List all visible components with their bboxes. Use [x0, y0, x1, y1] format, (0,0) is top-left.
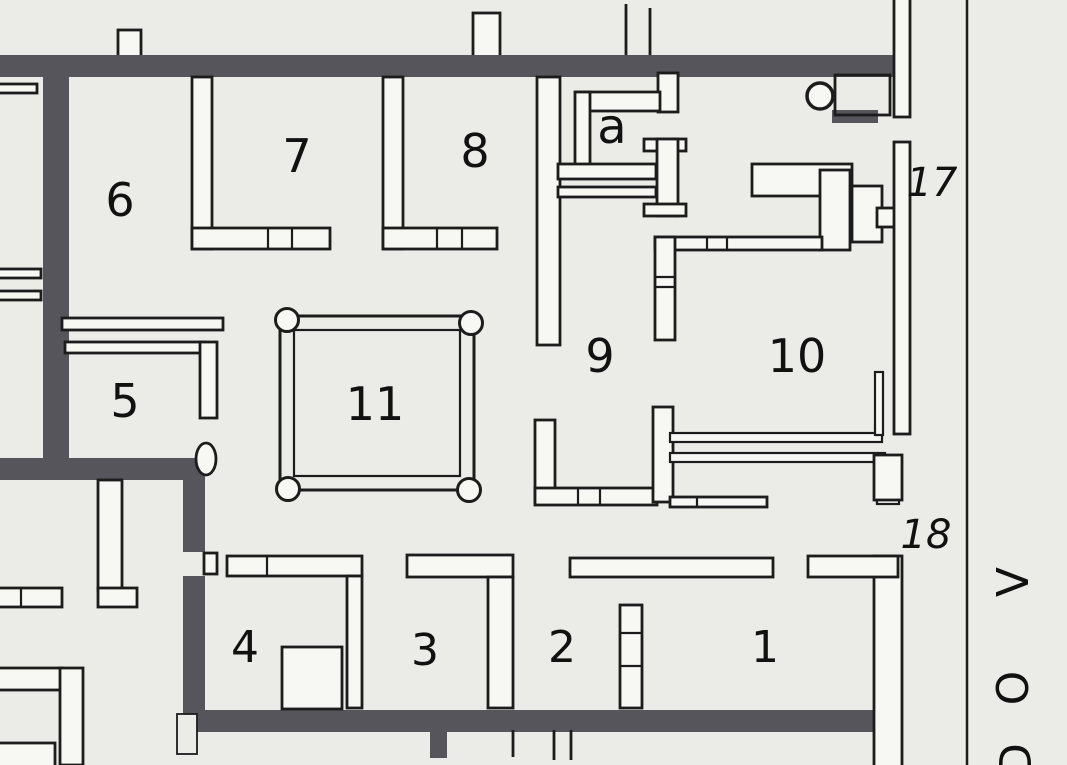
room-4-feature [282, 647, 342, 709]
street-char-1: V [988, 567, 1039, 597]
wall-10-north [655, 237, 822, 250]
thick-wall-alcove-sill [832, 110, 878, 123]
room-label-2: 2 [548, 622, 576, 673]
column-southeast [458, 479, 481, 502]
thick-wall-west-upper [43, 77, 69, 480]
corridor-wall-west-of-9 [537, 77, 560, 345]
wall-7-8-vertical [383, 77, 403, 249]
east-wall-below-18 [874, 556, 902, 765]
room-label-8: 8 [460, 124, 489, 178]
wall-5-east [200, 342, 217, 418]
room-label-3: 3 [411, 625, 439, 676]
neighbor-wall-L-horizontal [0, 668, 62, 690]
room-label-11: 11 [346, 377, 405, 431]
neighbor-wall-corner [0, 743, 55, 765]
wall-3-4-divider [347, 576, 362, 708]
wall-fauces-north [808, 556, 898, 577]
wall-2-3-divider [488, 577, 513, 708]
wall-10-east-connector [875, 372, 883, 435]
neighbor-wall-west [0, 588, 62, 607]
neighbor-wall-L-vertical [60, 668, 83, 765]
room-label-9: 9 [585, 329, 614, 383]
wall-1-2-divider [620, 605, 642, 708]
floor-plan: 6 7 8 a 9 10 11 5 4 3 2 1 17 18 V O D [0, 0, 1067, 765]
street-char-2: O [988, 671, 1039, 706]
wall-5-north-outer [62, 318, 223, 330]
room-label-a: a [597, 99, 626, 155]
room-label-6: 6 [105, 173, 134, 227]
doorway-jamb-room4-west [204, 553, 217, 574]
room-label-5: 5 [110, 374, 139, 428]
wall-notch-southwest-corner [177, 714, 197, 754]
west-neighbor-wall-2 [0, 269, 41, 278]
street-char-3: D [991, 743, 1042, 765]
room-label-4: 4 [231, 622, 259, 673]
wall-a-west [575, 92, 590, 166]
wall-4-north [227, 556, 362, 576]
pier-flange-bottom [644, 204, 686, 216]
wall-7-8-flange [383, 228, 497, 249]
column-northeast [460, 312, 483, 335]
thick-wall-top [0, 55, 910, 77]
wall-ne-vertical-1 [820, 170, 850, 250]
column-southwest [277, 478, 300, 501]
neighbor-wall-stem [98, 480, 122, 590]
wall-9-north [558, 187, 656, 197]
wall-6-7-flange [192, 228, 330, 249]
entrance-label-18: 18 [901, 512, 952, 558]
wall-9-10-divider-upper [655, 237, 675, 340]
wall-2-3-north [407, 555, 513, 577]
entrance-label-17: 17 [907, 160, 958, 206]
column-northwest [276, 309, 299, 332]
room-label-7: 7 [282, 129, 311, 183]
wall-stub-above-top-center [473, 13, 500, 60]
east-wall-above-18 [874, 455, 902, 500]
wall-south-of-divider [670, 497, 767, 507]
neighbor-wall-foot [98, 588, 137, 607]
west-neighbor-wall-1 [0, 84, 37, 93]
wall-10-south-lower [670, 453, 885, 462]
thick-wall-mid-left [0, 458, 205, 480]
wall-6-7-vertical [192, 77, 212, 249]
floor-plan-page: 6 7 8 a 9 10 11 5 4 3 2 1 17 18 V O D [0, 0, 1067, 765]
wall-a-south [558, 164, 656, 179]
room-label-10: 10 [768, 329, 827, 383]
east-wall-above-17 [894, 0, 910, 117]
wall-9-south [535, 488, 657, 505]
cistern-circle [807, 83, 833, 109]
wall-1-2-north [570, 558, 773, 577]
thick-wall-west-lower-a [183, 470, 205, 552]
thick-wall-bottom [183, 710, 897, 732]
room-label-1: 1 [751, 622, 779, 673]
wall-10-south-upper [670, 433, 882, 442]
door-pivot-oval [196, 443, 216, 475]
thick-wall-west-lower-b [183, 576, 205, 732]
west-neighbor-wall-3 [0, 291, 41, 300]
wall-5-north-inner [65, 342, 205, 353]
thick-wall-stub-south [430, 732, 447, 758]
